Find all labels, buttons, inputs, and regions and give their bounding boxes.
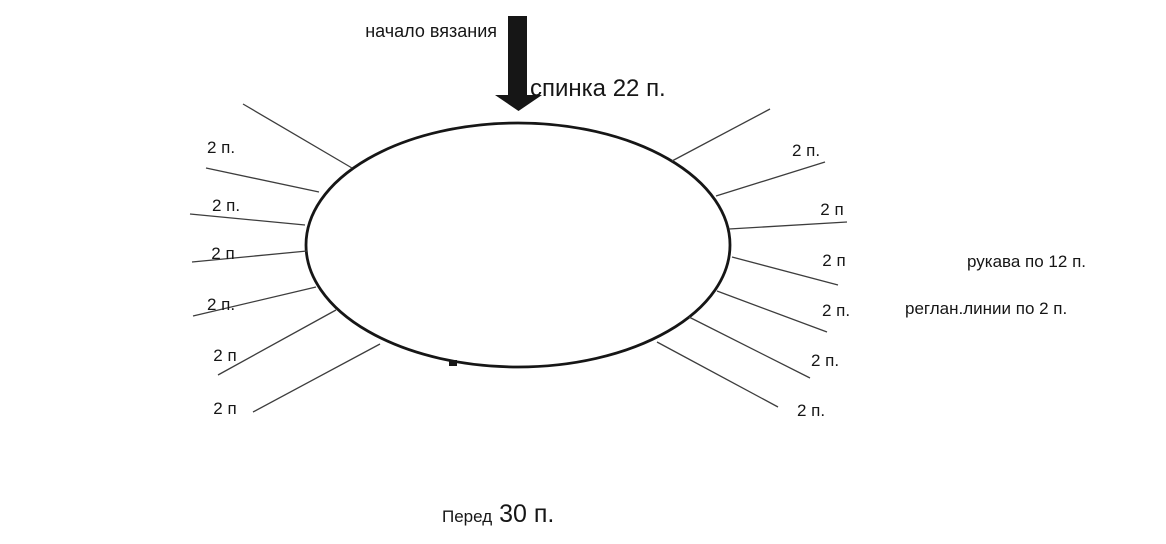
stitch-count-label: 2 п [213, 346, 236, 366]
stitch-count-label: 2 п. [212, 196, 240, 216]
stitch-count-label: 2 п. [207, 138, 235, 158]
back-stitches-label: спинка 22 п. [530, 75, 666, 103]
front-word: Перед [442, 507, 492, 527]
raglan-line [253, 344, 380, 412]
raglan-line [717, 291, 827, 332]
raglan-line [206, 168, 319, 192]
stitch-count-label: 2 п. [811, 351, 839, 371]
stitch-count-label: 2 п [822, 251, 845, 271]
cast-on-mark [449, 360, 457, 366]
knitting-raglan-diagram: начало вязания спинка 22 п. рукава по 12… [0, 0, 1166, 544]
raglan-line [672, 109, 770, 161]
stitch-count-label: 2 п. [792, 141, 820, 161]
stitch-count-label: 2 п. [797, 401, 825, 421]
start-label: начало вязания [365, 21, 497, 42]
raglan-line [190, 214, 305, 225]
raglan-line [729, 222, 847, 229]
stitch-count-label: 2 п [820, 200, 843, 220]
sleeves-note: рукава по 12 п. [967, 252, 1086, 272]
stitch-count-label: 2 п [213, 399, 236, 419]
raglan-line [657, 342, 778, 407]
stitch-count-label: 2 п [211, 244, 234, 264]
raglan-line [192, 251, 307, 262]
raglan-line [716, 162, 825, 196]
raglan-note: реглан.линии по 2 п. [905, 299, 1067, 319]
front-stitches-label: Перед 30 п. [442, 500, 554, 529]
stitch-count-label: 2 п. [207, 295, 235, 315]
front-count: 30 п. [499, 500, 554, 529]
neckline-ellipse [306, 123, 730, 367]
stitch-count-label: 2 п. [822, 301, 850, 321]
raglan-line [243, 104, 352, 168]
